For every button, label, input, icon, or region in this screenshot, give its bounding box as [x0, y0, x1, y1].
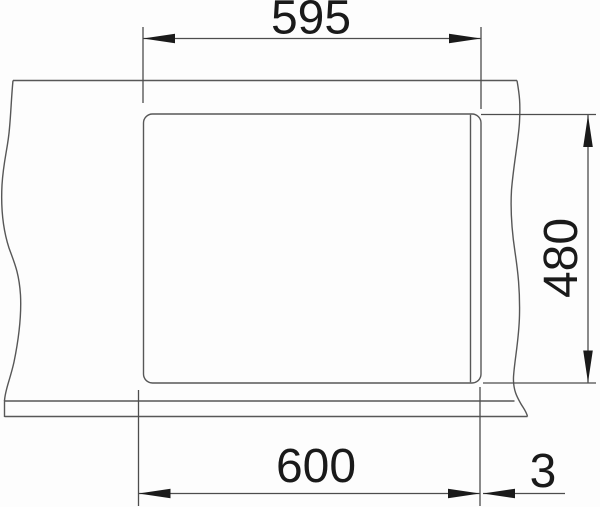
- arrowhead-right-icon: [448, 489, 480, 499]
- drawing-canvas: 595 480 600 3: [0, 0, 600, 507]
- dim-label-edge-gap: 3: [530, 445, 557, 498]
- arrowhead-left-icon: [143, 34, 175, 44]
- arrowhead-right-icon: [449, 34, 481, 44]
- sink-cutout-outline: [144, 114, 482, 383]
- dim-label-side-depth: 480: [535, 218, 588, 298]
- dim-label-top-width: 595: [271, 0, 351, 45]
- dimension-side-depth: 480: [535, 115, 593, 383]
- worktop: [2, 81, 528, 418]
- worktop-break-line-right: [511, 81, 527, 417]
- dimension-drawing: 595 480 600 3: [0, 0, 600, 507]
- dimension-bottom-width: 600: [139, 440, 481, 498]
- worktop-break-line-left: [2, 81, 21, 402]
- arrowhead-up-icon: [583, 115, 593, 147]
- extension-lines: [139, 27, 597, 506]
- dim-label-bottom-width: 600: [276, 440, 356, 493]
- dimension-top-width: 595: [143, 0, 481, 45]
- dimension-edge-gap: 3: [483, 445, 565, 498]
- arrowhead-left-icon: [139, 489, 171, 499]
- arrowhead-down-icon: [583, 351, 593, 383]
- sink-cutout: [144, 114, 482, 383]
- arrowhead-left-icon: [483, 489, 515, 499]
